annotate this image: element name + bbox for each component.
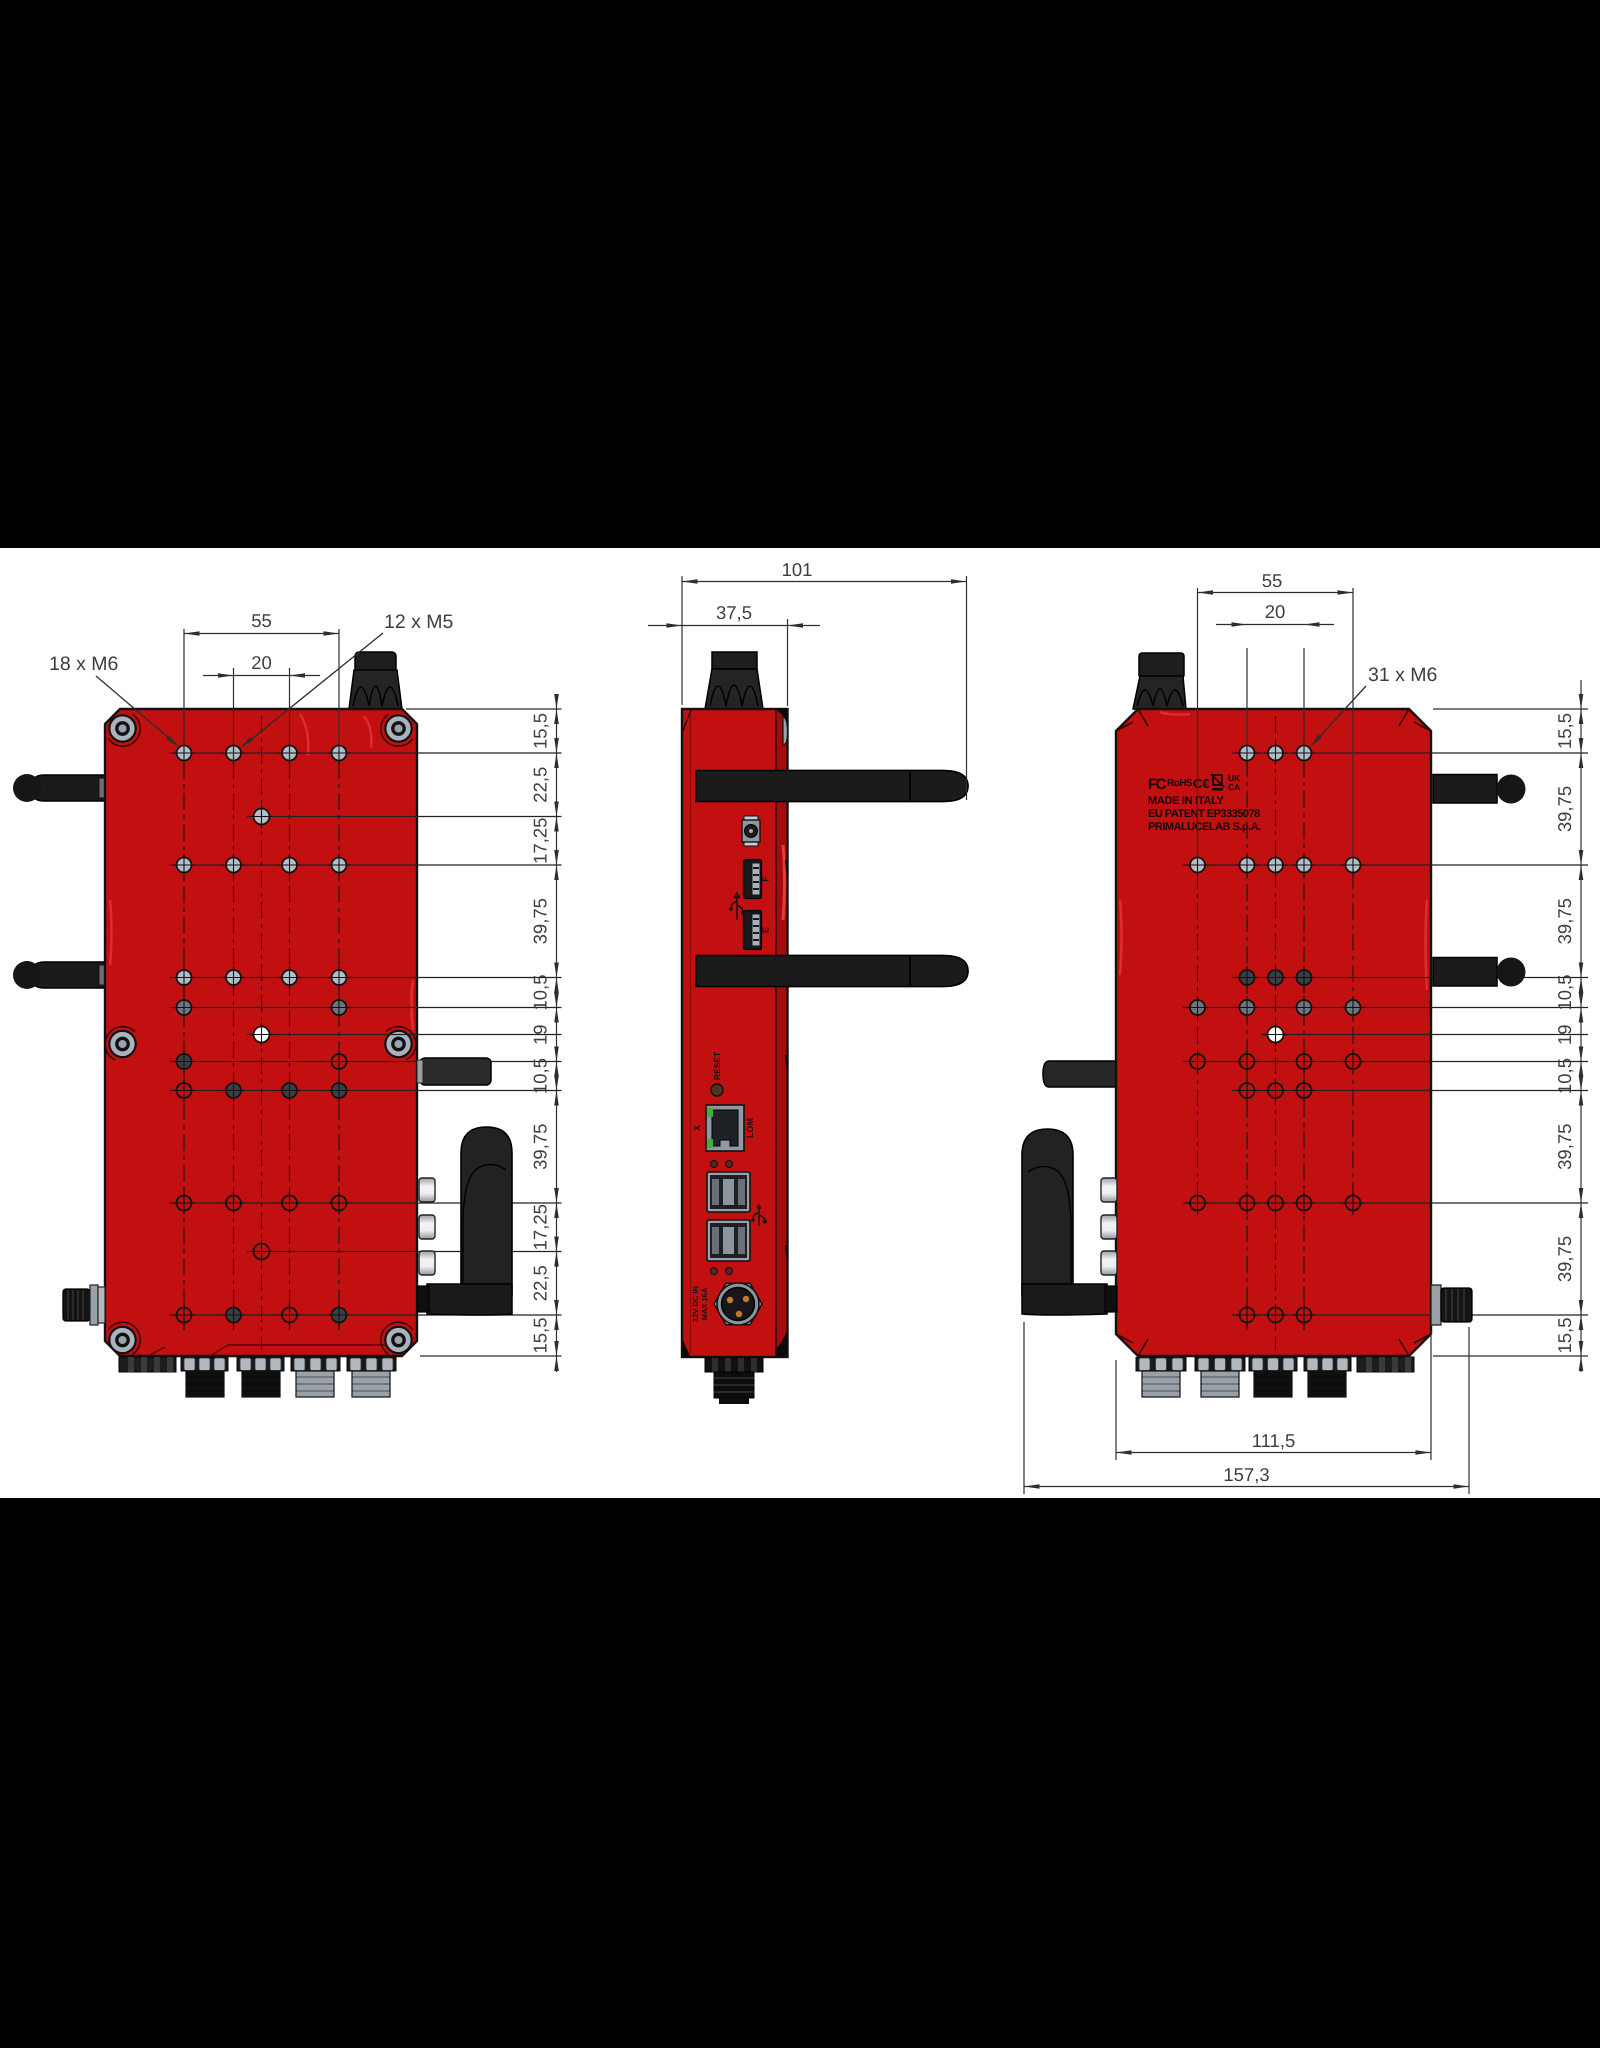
svg-text:MAX 16A: MAX 16A (700, 1287, 709, 1320)
svg-text:39,75: 39,75 (1554, 786, 1575, 832)
svg-text:17,25: 17,25 (530, 818, 551, 864)
svg-text:12 x M5: 12 x M5 (384, 611, 454, 633)
svg-text:RoHS: RoHS (1167, 778, 1193, 789)
svg-text:MADE IN ITALY: MADE IN ITALY (1148, 795, 1225, 807)
svg-text:37,5: 37,5 (716, 602, 752, 623)
svg-text:39,75: 39,75 (1554, 898, 1575, 944)
svg-text:20: 20 (1265, 601, 1286, 622)
svg-text:E: E (761, 927, 771, 933)
svg-text:157,3: 157,3 (1223, 1464, 1269, 1485)
svg-text:10,5: 10,5 (530, 974, 551, 1010)
svg-text:19: 19 (1554, 1024, 1575, 1045)
svg-text:101: 101 (782, 559, 813, 580)
svg-text:RESET: RESET (712, 1051, 722, 1080)
svg-text:10,5: 10,5 (1554, 1058, 1575, 1094)
svg-text:39,75: 39,75 (530, 1124, 551, 1170)
svg-text:EU PATENT EP3335078: EU PATENT EP3335078 (1148, 808, 1260, 820)
svg-text:15,5: 15,5 (530, 713, 551, 749)
svg-text:39,75: 39,75 (1554, 1124, 1575, 1170)
svg-text:18 x M6: 18 x M6 (49, 653, 118, 675)
svg-text:CA: CA (1228, 782, 1240, 792)
svg-text:15,5: 15,5 (1554, 713, 1575, 749)
svg-text:19: 19 (530, 1024, 551, 1045)
svg-text:22,5: 22,5 (530, 1265, 551, 1301)
svg-text:X: X (692, 1125, 702, 1131)
svg-text:39,75: 39,75 (1554, 1236, 1575, 1282)
svg-text:12V DC IN: 12V DC IN (691, 1286, 700, 1322)
svg-text:15,5: 15,5 (1554, 1317, 1575, 1353)
svg-text:20: 20 (251, 652, 272, 673)
svg-text:15,5: 15,5 (530, 1317, 551, 1353)
svg-text:111,5: 111,5 (1252, 1430, 1296, 1451)
svg-text:F: F (761, 876, 771, 882)
svg-text:39,75: 39,75 (530, 898, 551, 944)
svg-text:55: 55 (1262, 570, 1283, 591)
svg-text:LOM: LOM (745, 1118, 755, 1138)
svg-text:10,5: 10,5 (1554, 974, 1575, 1010)
svg-text:22,5: 22,5 (530, 767, 551, 803)
svg-text:10,5: 10,5 (530, 1058, 551, 1094)
svg-text:C€: C€ (1193, 776, 1210, 791)
svg-text:31 x M6: 31 x M6 (1368, 664, 1437, 686)
svg-text:PRIMALUCELAB S.p.A.: PRIMALUCELAB S.p.A. (1148, 821, 1261, 833)
svg-text:FC: FC (1148, 776, 1167, 793)
svg-text:55: 55 (251, 610, 272, 631)
svg-text:17,25: 17,25 (530, 1204, 551, 1250)
